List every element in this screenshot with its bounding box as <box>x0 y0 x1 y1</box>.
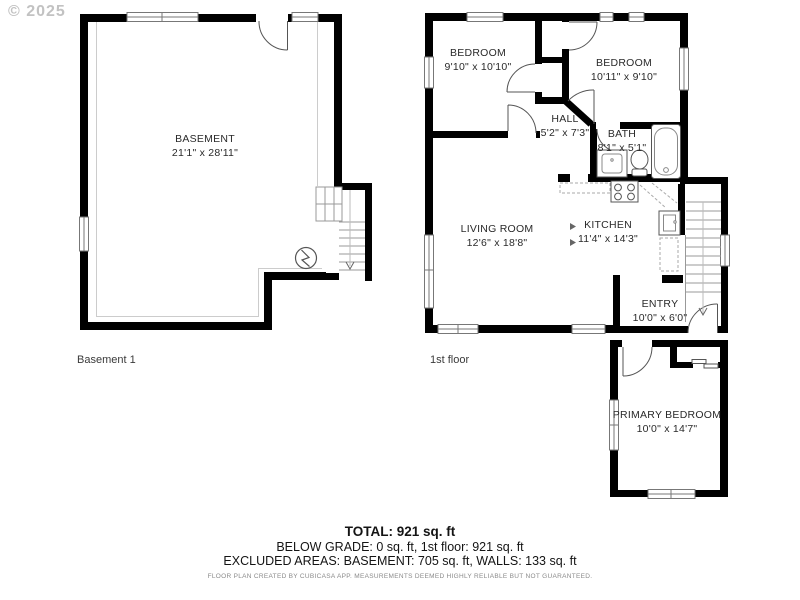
room-label-hall: HALL 5'2" x 7'3" <box>541 112 590 140</box>
window-icon <box>127 13 198 22</box>
excluded-areas-text: EXCLUDED AREAS: BASEMENT: 705 sq. ft, WA… <box>0 554 800 568</box>
room-label-entry: ENTRY 10'0" x 6'0" <box>633 297 688 325</box>
room-dims: 10'0" x 14'7" <box>613 422 721 436</box>
window-icon <box>600 13 613 22</box>
basement-staircase <box>316 187 365 270</box>
room-label-bath: BATH 8'1" x 5'1" <box>598 127 647 155</box>
room-label-primary-bedroom: PRIMARY BEDROOM 10'0" x 14'7" <box>613 408 721 436</box>
door-swing-icon <box>623 347 652 376</box>
below-grade-text: BELOW GRADE: 0 sq. ft, 1st floor: 921 sq… <box>0 540 800 554</box>
window-icon <box>721 235 730 266</box>
window-icon <box>425 235 434 308</box>
opening-marker-icon <box>570 223 576 246</box>
kitchen-sink-icon <box>659 211 680 235</box>
room-label-bedroom-1: BEDROOM 9'10" x 10'10" <box>445 46 512 74</box>
window-icon <box>648 490 695 499</box>
room-dims: 5'2" x 7'3" <box>541 126 590 140</box>
room-dims: 10'0" x 6'0" <box>633 311 688 325</box>
window-icon <box>292 13 318 22</box>
room-dims: 21'1" x 28'11" <box>172 146 238 160</box>
window-icon <box>629 13 644 22</box>
window-icon <box>438 325 478 334</box>
bathtub-icon <box>652 125 681 179</box>
area-summary: TOTAL: 921 sq. ft BELOW GRADE: 0 sq. ft,… <box>0 524 800 580</box>
total-area-text: TOTAL: 921 sq. ft <box>0 524 800 540</box>
room-label-living-room: LIVING ROOM 12'6" x 18'8" <box>461 222 534 250</box>
room-name: KITCHEN <box>578 218 638 232</box>
room-name: ENTRY <box>633 297 688 311</box>
room-name: PRIMARY BEDROOM <box>613 408 721 422</box>
room-dims: 11'4" x 14'3" <box>578 232 638 246</box>
electrical-symbol-icon <box>296 248 317 269</box>
room-name: LIVING ROOM <box>461 222 534 236</box>
window-icon <box>80 217 89 251</box>
window-icon <box>467 13 503 22</box>
door-swing-icon <box>569 22 597 50</box>
window-icon <box>680 48 689 90</box>
room-label-bedroom-2: BEDROOM 10'11" x 9'10" <box>591 56 657 84</box>
room-name: BEDROOM <box>591 56 657 70</box>
room-dims: 8'1" x 5'1" <box>598 141 647 155</box>
window-icon <box>572 325 605 334</box>
room-dims: 10'11" x 9'10" <box>591 70 657 84</box>
floor-label-1st-floor: 1st floor <box>430 354 469 366</box>
room-name: HALL <box>541 112 590 126</box>
room-name: BEDROOM <box>445 46 512 60</box>
floorplan-page: © 2025 BASEMENT 21'1" x 28'11" BEDROOM 9… <box>0 0 800 600</box>
room-name: BATH <box>598 127 647 141</box>
disclaimer-text: FLOOR PLAN CREATED BY CUBICASA APP. MEAS… <box>0 573 800 580</box>
room-name: BASEMENT <box>172 132 238 146</box>
window-icon <box>425 57 434 88</box>
copyright-watermark: © 2025 <box>8 3 66 21</box>
basement-walls <box>80 14 372 330</box>
stove-icon <box>611 181 638 202</box>
basement-plan <box>80 13 373 331</box>
room-label-basement: BASEMENT 21'1" x 28'11" <box>172 132 238 160</box>
room-dims: 12'6" x 18'8" <box>461 236 534 250</box>
door-swing-icon <box>508 105 536 133</box>
door-swing-icon <box>256 13 288 50</box>
floor-label-basement: Basement 1 <box>77 354 136 366</box>
room-label-kitchen: KITCHEN 11'4" x 14'3" <box>578 218 638 246</box>
room-dims: 9'10" x 10'10" <box>445 60 512 74</box>
